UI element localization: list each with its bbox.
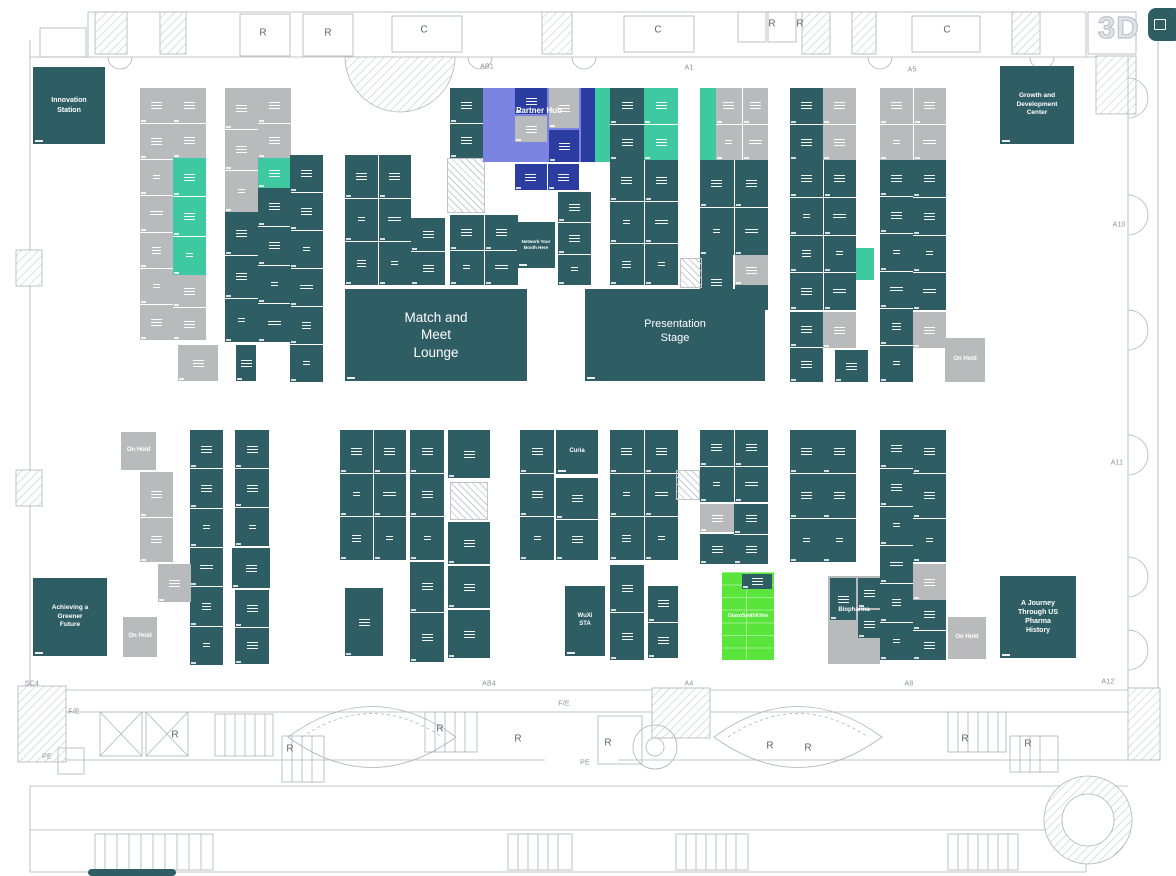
booth-cell[interactable] (700, 160, 734, 207)
booth-cell[interactable] (140, 472, 173, 517)
booth-block[interactable] (913, 160, 946, 310)
booth-block[interactable] (515, 164, 579, 190)
booth-cell[interactable] (558, 192, 591, 222)
booth-cell[interactable] (140, 88, 173, 123)
booth-cell[interactable] (913, 160, 946, 197)
booth-block[interactable] (790, 88, 823, 160)
booth-block[interactable] (450, 88, 483, 158)
booth-block[interactable] (644, 88, 678, 160)
booth-block[interactable] (700, 504, 734, 532)
booth-cell[interactable] (735, 430, 769, 466)
booth-block[interactable] (158, 564, 191, 602)
hatched-column (450, 482, 488, 520)
room-letter: R (766, 741, 773, 752)
booth-block[interactable] (734, 504, 768, 564)
booth-cell[interactable] (140, 233, 173, 268)
booth-cell[interactable] (790, 236, 823, 273)
wuxi-sta-booth[interactable]: WuXi STA (565, 586, 605, 656)
booth-cell[interactable] (716, 88, 742, 124)
booth-block[interactable] (716, 88, 768, 160)
booth-cell[interactable] (790, 430, 823, 473)
booth-cell[interactable] (824, 236, 857, 273)
booth-cell[interactable] (610, 160, 644, 201)
booth-block[interactable] (610, 565, 644, 660)
booth-cell[interactable] (258, 88, 291, 123)
booth-block[interactable] (700, 430, 768, 502)
booth-block[interactable] (448, 610, 490, 658)
booth-cell[interactable] (790, 519, 823, 562)
booth-cell[interactable] (880, 469, 913, 507)
room-letter: C (420, 25, 427, 36)
booth-block[interactable] (178, 345, 218, 381)
booth-cell[interactable] (190, 548, 223, 586)
booth-cell[interactable] (235, 430, 269, 468)
booth-cell[interactable] (190, 627, 223, 665)
area-label: Biopharma (838, 607, 869, 615)
booth-cell[interactable] (235, 469, 269, 507)
booth-cell[interactable] (520, 474, 554, 517)
partner-hub-label: Partner Hub (489, 100, 589, 122)
booth-cell[interactable] (290, 231, 323, 268)
perimeter-label: A4 (685, 681, 694, 688)
booth-cell[interactable] (258, 227, 291, 265)
booth-cell[interactable] (173, 158, 206, 196)
area-label: GlaxoSmithKline (728, 613, 768, 620)
booth-cell[interactable] (743, 125, 769, 161)
room-letter: R (961, 734, 968, 745)
booth-cell[interactable] (790, 198, 823, 235)
area-label: Innovation Station (45, 96, 93, 114)
booth-cell[interactable] (734, 535, 768, 565)
booth-block[interactable] (595, 88, 610, 162)
booth-cell[interactable] (790, 125, 823, 161)
booth-block[interactable] (225, 212, 258, 342)
area-label: Presentation Stage (629, 317, 721, 346)
booth-cell[interactable] (610, 244, 644, 285)
booth-cell[interactable] (379, 199, 412, 242)
booth-cell[interactable] (823, 519, 856, 562)
on-hold-booth[interactable]: On Hold (121, 432, 156, 470)
perimeter-label: F/E (68, 709, 80, 716)
booth-cell[interactable] (735, 467, 769, 503)
booth-cell[interactable] (823, 474, 856, 517)
booth-cell[interactable] (448, 430, 490, 478)
room-letter: C (943, 25, 950, 36)
room-letter: R (436, 724, 443, 735)
booth-block[interactable] (140, 472, 173, 562)
booth-cell[interactable] (410, 517, 444, 560)
room-letter: C (654, 25, 661, 36)
area-label: Growth and Development Center (1010, 92, 1065, 117)
on-hold-booth[interactable]: On Hold (948, 617, 986, 659)
booth-cell[interactable] (880, 623, 913, 661)
booth-cell[interactable] (173, 197, 206, 235)
booth-cell[interactable] (450, 124, 483, 159)
area-label: On Hold (953, 356, 976, 364)
booth-cell[interactable] (140, 160, 173, 195)
booth-cell[interactable] (823, 312, 856, 348)
booth-block[interactable] (700, 534, 734, 564)
booth-cell[interactable] (610, 202, 644, 243)
booth-cell[interactable] (700, 534, 734, 564)
booth-cell[interactable] (735, 255, 768, 285)
achieving-greener-future-area[interactable]: Achieving a Greener Future (33, 578, 107, 656)
perimeter-label: PE (580, 760, 590, 767)
booth-cell[interactable] (340, 517, 373, 560)
booth-cell[interactable] (410, 613, 444, 663)
booth-cell[interactable] (290, 193, 323, 230)
booth-cell[interactable] (610, 613, 644, 660)
area-label: On Hold (955, 634, 978, 642)
booth-cell[interactable] (913, 519, 946, 562)
booth-cell[interactable] (450, 88, 483, 123)
booth-cell[interactable] (823, 430, 856, 473)
booth-block[interactable] (410, 562, 444, 662)
booth-cell[interactable] (790, 348, 823, 383)
booth-block[interactable] (520, 430, 554, 560)
booth-cell[interactable] (190, 430, 223, 468)
booth-block[interactable] (236, 345, 256, 381)
booth-cell[interactable] (880, 125, 913, 161)
booth-cell[interactable] (340, 430, 373, 473)
booth-cell[interactable] (913, 236, 946, 273)
booth-cell[interactable] (258, 158, 291, 188)
booth-block[interactable] (450, 215, 518, 285)
booth-block[interactable] (913, 564, 946, 600)
booth-block[interactable] (823, 88, 856, 160)
booth-cell[interactable] (880, 160, 913, 196)
booth-block[interactable] (448, 430, 490, 478)
room-letter: R (171, 730, 178, 741)
room-letter: R (286, 744, 293, 755)
booth-cell[interactable] (225, 88, 258, 129)
booth-cell[interactable] (232, 548, 270, 588)
booth-cell[interactable] (880, 507, 913, 545)
booth-cell[interactable] (914, 88, 947, 124)
booth-cell[interactable] (225, 212, 258, 255)
booth-block[interactable] (700, 160, 768, 255)
booth-cell[interactable] (880, 88, 913, 124)
booth-cell[interactable] (880, 309, 913, 345)
booth-cell[interactable] (835, 350, 868, 382)
booth-block[interactable] (345, 588, 383, 656)
booth-cell[interactable] (743, 88, 769, 124)
booth-cell[interactable] (556, 478, 598, 519)
on-hold-booth[interactable]: On Hold (123, 617, 157, 657)
booth-cell[interactable] (823, 88, 856, 124)
booth-cell[interactable] (374, 517, 407, 560)
booth-cell[interactable] (742, 574, 772, 589)
booth-block[interactable] (880, 160, 913, 382)
perimeter-label: A12 (1101, 679, 1114, 686)
area-label: WuXi STA (572, 613, 598, 629)
booth-block[interactable] (173, 88, 206, 158)
booth-block[interactable] (173, 275, 206, 340)
area-label: Achieving a Greener Future (48, 604, 93, 629)
booth-cell[interactable] (290, 155, 323, 192)
perimeter-label: A8 (905, 681, 914, 688)
booth-cell[interactable] (173, 308, 206, 340)
booth-cell[interactable] (913, 198, 946, 235)
booth-cell[interactable] (345, 588, 383, 656)
area-label: On Hold (128, 633, 151, 641)
booth-cell[interactable] (610, 474, 644, 517)
innovation-station-area[interactable]: Innovation Station (33, 67, 105, 144)
booth-cell[interactable] (913, 474, 946, 517)
pharma-history-area[interactable]: A Journey Through US Pharma History (1000, 576, 1076, 658)
booth-cell[interactable] (140, 124, 173, 159)
booth-cell[interactable] (644, 88, 678, 124)
booth-cell[interactable] (645, 430, 679, 473)
booth-block[interactable] (190, 430, 223, 665)
booth-block[interactable] (345, 155, 411, 285)
booth-block[interactable] (610, 430, 678, 560)
booth-block[interactable] (790, 430, 823, 562)
booth-cell[interactable] (345, 199, 378, 242)
booth-cell[interactable] (448, 522, 490, 564)
booth-block[interactable] (549, 130, 579, 162)
booth-cell[interactable] (790, 160, 823, 197)
booth-cell[interactable] (235, 590, 269, 627)
booth-cell[interactable] (190, 469, 223, 507)
booth-cell[interactable] (824, 273, 857, 310)
booth-cell[interactable] (140, 196, 173, 231)
booth-block[interactable] (235, 430, 269, 546)
growth-development-center-area[interactable]: Growth and Development Center (1000, 66, 1074, 144)
booth-block[interactable] (880, 88, 946, 160)
booth-cell[interactable] (700, 504, 734, 532)
booth-block[interactable] (790, 160, 856, 310)
booth-cell[interactable] (716, 125, 742, 161)
booth-block[interactable] (556, 478, 598, 560)
booth-block[interactable] (790, 312, 823, 382)
booth-cell[interactable] (880, 272, 913, 308)
booth-cell[interactable] (610, 88, 644, 124)
booth-cell[interactable] (645, 160, 679, 201)
booth-cell[interactable] (235, 508, 269, 546)
booth-cell[interactable] (700, 467, 734, 503)
perimeter-label: AB1 (480, 64, 494, 71)
3d-view-toggle[interactable]: 3D (1098, 10, 1140, 46)
booth-cell[interactable] (610, 430, 644, 473)
booth-cell[interactable] (735, 160, 769, 207)
perimeter-label: A5 (908, 67, 917, 74)
presentation-stage[interactable]: Presentation Stage (585, 289, 765, 381)
booth-cell[interactable] (515, 164, 547, 190)
booth-block[interactable] (835, 350, 868, 382)
booth-block[interactable] (140, 88, 173, 340)
curia-booth[interactable]: Curia (556, 430, 598, 474)
booth-cell[interactable] (173, 88, 206, 123)
booth-cell[interactable] (236, 345, 256, 381)
booth-block[interactable] (880, 430, 913, 660)
booth-block[interactable] (913, 312, 946, 348)
booth-cell[interactable] (913, 430, 946, 473)
booth-cell[interactable] (648, 623, 678, 659)
booth-block[interactable] (823, 430, 856, 562)
booth-block[interactable] (913, 600, 946, 660)
booth-cell[interactable] (485, 215, 519, 250)
booth-cell[interactable] (258, 188, 291, 226)
booth-cell[interactable] (790, 474, 823, 517)
booth-block[interactable] (648, 586, 678, 658)
booth-cell[interactable] (345, 155, 378, 198)
booth-cell[interactable] (374, 430, 407, 473)
fullscreen-button[interactable] (1148, 8, 1176, 41)
booth-cell[interactable] (225, 299, 258, 342)
booth-cell[interactable] (648, 586, 678, 622)
booth-cell[interactable] (880, 197, 913, 233)
booth-block[interactable] (448, 566, 490, 608)
booth-cell[interactable] (610, 565, 644, 612)
booth-cell[interactable] (173, 124, 206, 159)
hatched-column (447, 158, 485, 213)
area-label: Partner Hub (516, 106, 562, 116)
booth-cell[interactable] (448, 566, 490, 608)
booth-cell[interactable] (258, 304, 291, 342)
booth-block[interactable] (290, 155, 323, 382)
booth-cell[interactable] (645, 517, 679, 560)
booth-cell[interactable] (913, 312, 946, 348)
booth-block[interactable] (225, 88, 258, 212)
booth-cell[interactable] (700, 430, 734, 466)
booth-cell[interactable] (558, 223, 591, 253)
booth-block[interactable] (173, 158, 206, 275)
booth-block[interactable] (700, 88, 716, 160)
booth-cell[interactable] (290, 307, 323, 344)
booth-cell[interactable] (258, 124, 291, 159)
booth-cell[interactable] (173, 275, 206, 307)
booth-cell[interactable] (225, 256, 258, 299)
booth-cell[interactable] (290, 269, 323, 306)
booth-cell[interactable] (913, 631, 946, 661)
booth-cell[interactable] (880, 346, 913, 382)
booth-cell[interactable] (913, 600, 946, 630)
network-your-booth-here[interactable]: Network Your Booth Here (517, 222, 555, 268)
booth-cell[interactable] (549, 130, 579, 162)
booth-cell[interactable] (558, 255, 591, 285)
booth-cell[interactable] (173, 237, 206, 275)
booth-cell[interactable] (410, 562, 444, 612)
booth-cell[interactable] (880, 234, 913, 270)
booth-block[interactable] (558, 192, 591, 285)
booth-block[interactable] (232, 548, 270, 588)
booth-cell[interactable] (140, 305, 173, 340)
booth-block[interactable] (410, 430, 444, 560)
booth-cell[interactable] (140, 269, 173, 304)
booth-cell[interactable] (790, 273, 823, 310)
booth-cell[interactable] (913, 564, 946, 600)
booth-block[interactable] (258, 158, 291, 188)
booth-block[interactable] (735, 255, 768, 285)
match-and-meet-lounge[interactable]: Match and Meet Lounge (345, 289, 527, 381)
booth-cell[interactable] (913, 273, 946, 310)
booth-cell[interactable] (880, 546, 913, 584)
booth-cell[interactable] (411, 252, 445, 285)
booth-cell[interactable] (379, 242, 412, 285)
booth-cell[interactable] (225, 130, 258, 171)
booth-cell[interactable] (880, 430, 913, 468)
booth-cell[interactable] (158, 564, 191, 602)
booth-cell[interactable] (450, 215, 484, 250)
booth-block[interactable] (823, 312, 856, 348)
perimeter-label: A11 (1111, 460, 1124, 467)
booth-cell[interactable] (450, 251, 484, 286)
booth-cell[interactable] (556, 520, 598, 561)
booth-block[interactable] (258, 188, 291, 342)
room-letter: R (259, 28, 266, 39)
booth-cell[interactable] (190, 587, 223, 625)
booth-cell[interactable] (610, 125, 644, 161)
booth-block[interactable] (913, 430, 946, 562)
room-letter: R (1024, 739, 1031, 750)
booth-cell[interactable] (548, 164, 580, 190)
on-hold-booth[interactable]: On Hold (945, 338, 985, 382)
booth-cell[interactable] (448, 610, 490, 658)
booth-block[interactable] (610, 88, 644, 160)
booth-cell[interactable] (790, 312, 823, 347)
booth-cell[interactable] (610, 517, 644, 560)
booth-cell[interactable] (410, 430, 444, 473)
booth-cell[interactable] (520, 430, 554, 473)
booth-cell[interactable] (644, 125, 678, 161)
booth-cell[interactable] (258, 266, 291, 304)
booth-cell[interactable] (140, 518, 173, 563)
booth-cell[interactable] (345, 242, 378, 285)
booth-cell[interactable] (880, 584, 913, 622)
booth-cell[interactable] (645, 202, 679, 243)
booth-cell[interactable] (823, 125, 856, 161)
booth-block[interactable] (235, 590, 269, 664)
booth-cell[interactable] (645, 474, 679, 517)
booth-block[interactable] (340, 430, 406, 560)
booth-block[interactable] (258, 88, 291, 158)
hatched-column (680, 258, 702, 288)
floorplan-canvas[interactable]: Partner HubNetwork Your Booth HereOn Hol… (0, 0, 1176, 876)
booth-cell[interactable] (734, 504, 768, 534)
booth-cell[interactable] (824, 160, 857, 197)
room-letter: R (604, 738, 611, 749)
booth-cell[interactable] (700, 208, 734, 255)
booth-cell[interactable] (914, 125, 947, 161)
booth-cell[interactable] (790, 88, 823, 124)
booth-cell[interactable] (824, 198, 857, 235)
hatched-column (676, 470, 700, 500)
booth-block[interactable] (448, 522, 490, 564)
booth-cell[interactable] (290, 345, 323, 382)
booth-cell[interactable] (410, 474, 444, 517)
booth-cell[interactable] (190, 509, 223, 547)
booth-cell[interactable] (411, 218, 445, 251)
booth-block[interactable] (610, 160, 678, 285)
booth-cell[interactable] (735, 208, 769, 255)
room-letter: R (324, 28, 331, 39)
perimeter-label: F/E (558, 701, 570, 708)
booth-cell[interactable] (485, 251, 519, 286)
booth-cell[interactable] (340, 474, 373, 517)
booth-cell[interactable] (374, 474, 407, 517)
booth-cell[interactable] (235, 628, 269, 665)
booth-cell[interactable] (178, 345, 218, 381)
booth-cell[interactable] (379, 155, 412, 198)
area-label: Match and Meet Lounge (404, 309, 468, 362)
booth-cell[interactable] (645, 244, 679, 285)
booth-block[interactable] (411, 218, 445, 285)
booth-block[interactable] (856, 248, 874, 280)
booth-logo-chip[interactable] (742, 574, 772, 589)
booth-cell[interactable] (225, 171, 258, 212)
booth-cell[interactable] (520, 517, 554, 560)
